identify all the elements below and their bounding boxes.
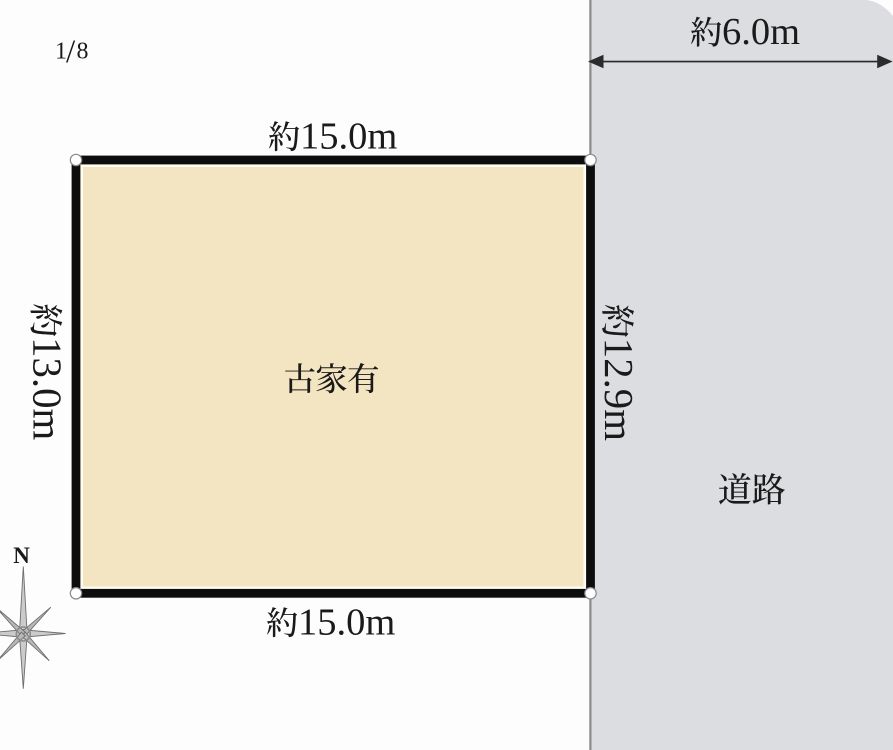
svg-text:15.0m: 15.0m <box>300 116 397 158</box>
svg-text:8: 8 <box>77 39 89 65</box>
svg-text:15.0m: 15.0m <box>298 602 395 644</box>
svg-text:/: / <box>66 34 76 70</box>
svg-text:6.0m: 6.0m <box>722 11 800 53</box>
svg-text:12.9m: 12.9m <box>596 338 641 441</box>
svg-text:13.0m: 13.0m <box>24 337 69 440</box>
svg-text:N: N <box>13 543 30 568</box>
